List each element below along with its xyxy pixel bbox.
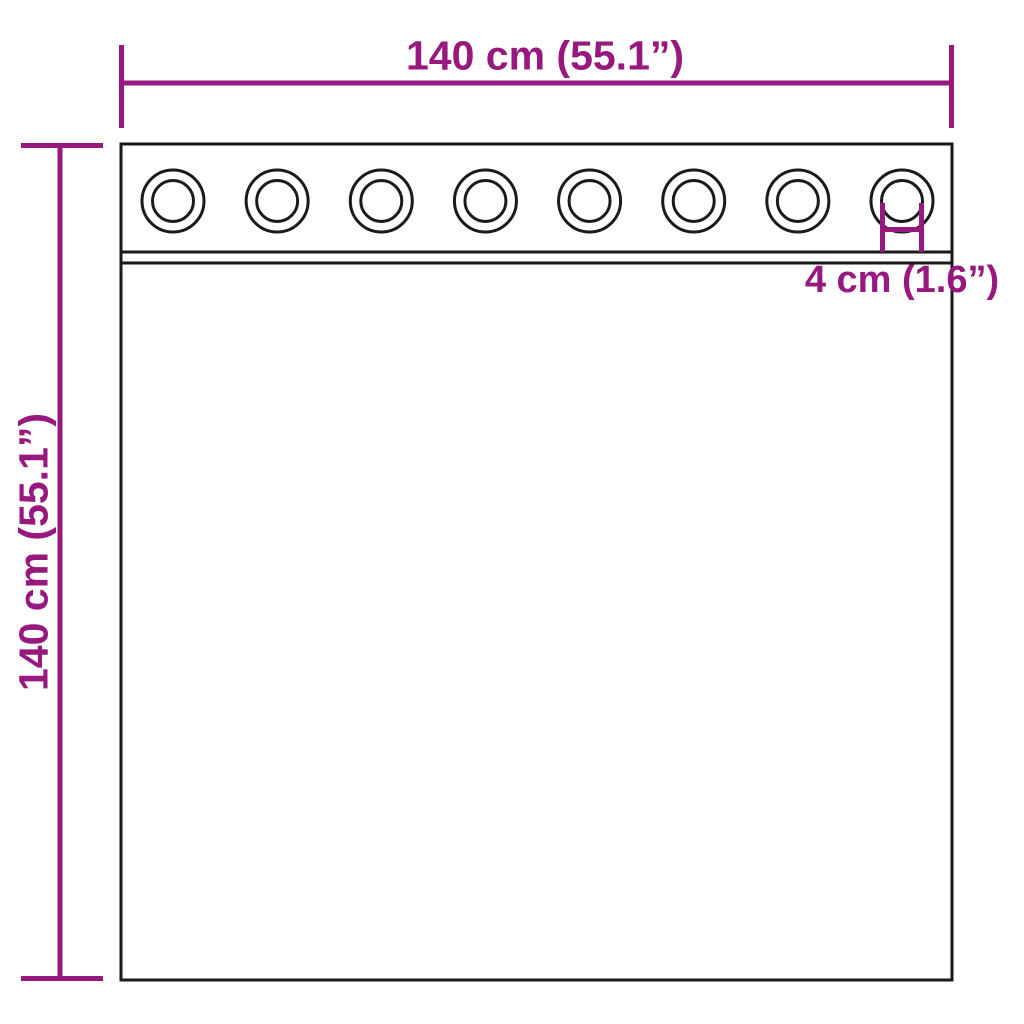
grommet-inner-ring: [361, 181, 402, 222]
diagram-graphics: [0, 0, 1024, 1024]
grommet-inner-ring: [465, 181, 506, 222]
grommets: [142, 170, 933, 232]
grommet-dimension-line: [880, 203, 924, 252]
grommet-inner-ring: [673, 181, 714, 222]
grommet-inner-ring: [153, 181, 194, 222]
width-dimension-label: 140 cm (55.1”): [406, 36, 684, 77]
grommet-inner-ring: [257, 181, 298, 222]
grommet-inner-ring: [569, 181, 610, 222]
grommet-inner-ring: [882, 181, 923, 222]
grommet-inner-ring: [777, 181, 818, 222]
grommet-dimension-label: 4 cm (1.6”): [805, 261, 999, 299]
height-dimension-label: 140 cm (55.1”): [14, 413, 55, 691]
curtain-dimension-diagram: 140 cm (55.1”) 140 cm (55.1”) 4 cm (1.6”…: [0, 0, 1024, 1024]
